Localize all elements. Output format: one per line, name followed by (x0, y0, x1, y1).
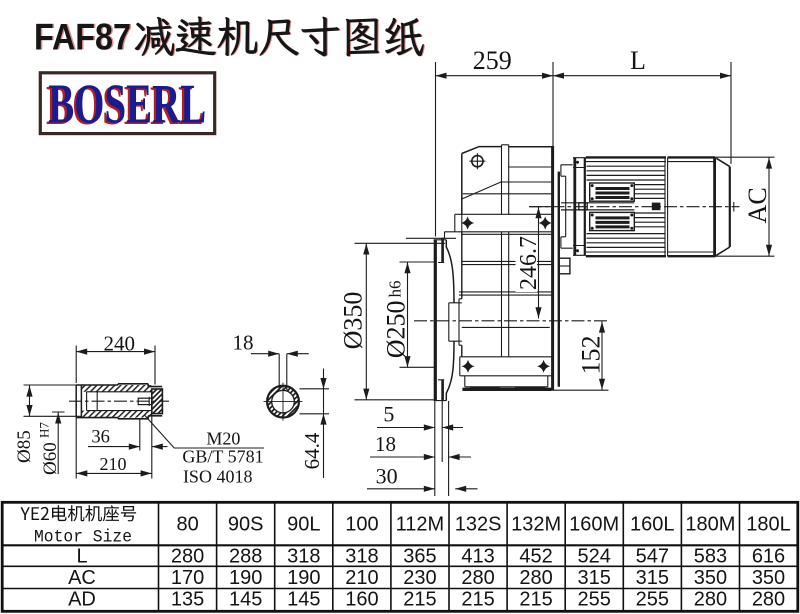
svg-text:215: 215 (403, 589, 436, 611)
svg-text:350: 350 (752, 567, 785, 589)
svg-text:AD: AD (68, 589, 96, 611)
svg-text:255: 255 (578, 589, 611, 611)
svg-text:583: 583 (694, 545, 727, 567)
svg-text:318: 318 (287, 545, 320, 567)
svg-text:246.7: 246.7 (516, 236, 542, 290)
svg-text:160M: 160M (569, 514, 619, 536)
svg-text:BOSERL: BOSERL (48, 74, 206, 136)
svg-text:152: 152 (577, 336, 606, 375)
svg-text:L: L (76, 545, 87, 567)
svg-text:90L: 90L (287, 514, 320, 536)
svg-text:36: 36 (91, 427, 110, 447)
svg-text:132S: 132S (455, 514, 502, 536)
svg-text:L: L (630, 46, 646, 75)
svg-text:547: 547 (636, 545, 669, 567)
svg-text:145: 145 (287, 589, 320, 611)
svg-text:180M: 180M (685, 514, 735, 536)
svg-text:230: 230 (403, 567, 436, 589)
svg-text:190: 190 (287, 567, 320, 589)
svg-text:Ø250: Ø250 (382, 301, 411, 359)
svg-text:210: 210 (345, 567, 378, 589)
svg-text:255: 255 (636, 589, 669, 611)
svg-text:132M: 132M (511, 514, 561, 536)
svg-text:AC: AC (68, 567, 96, 589)
svg-text:145: 145 (229, 589, 262, 611)
svg-text:259: 259 (473, 46, 512, 75)
svg-text:Ø85: Ø85 (14, 430, 35, 463)
svg-text:452: 452 (519, 545, 552, 567)
svg-text:524: 524 (578, 545, 611, 567)
svg-text:215: 215 (519, 589, 552, 611)
svg-text:318: 318 (345, 545, 378, 567)
svg-text:Ø350: Ø350 (339, 292, 368, 350)
svg-text:100: 100 (345, 514, 378, 536)
svg-text:616: 616 (752, 545, 785, 567)
svg-text:64.4: 64.4 (300, 432, 324, 469)
svg-text:GB/T 5781: GB/T 5781 (182, 447, 263, 467)
svg-text:190: 190 (229, 567, 262, 589)
svg-text:280: 280 (752, 589, 785, 611)
svg-text:5: 5 (383, 402, 394, 427)
svg-text:413: 413 (461, 545, 494, 567)
svg-text:FAF87: FAF87 (34, 17, 131, 58)
svg-text:18: 18 (375, 432, 396, 456)
svg-text:315: 315 (636, 567, 669, 589)
svg-text:18: 18 (233, 331, 254, 355)
svg-text:Ø60: Ø60 (40, 442, 61, 475)
svg-text:365: 365 (403, 545, 436, 567)
svg-text:AC: AC (743, 187, 772, 223)
svg-text:288: 288 (229, 545, 262, 567)
svg-text:ISO 4018: ISO 4018 (183, 467, 253, 487)
svg-text:170: 170 (171, 567, 204, 589)
svg-text:H7: H7 (37, 422, 52, 438)
svg-text:280: 280 (519, 567, 552, 589)
svg-text:160L: 160L (630, 514, 675, 536)
svg-text:112M: 112M (396, 514, 445, 536)
svg-text:80: 80 (176, 514, 198, 536)
svg-text:350: 350 (694, 567, 727, 589)
svg-text:280: 280 (171, 545, 204, 567)
svg-text:30: 30 (376, 464, 398, 489)
svg-text:315: 315 (578, 567, 611, 589)
svg-text:M20: M20 (206, 428, 240, 448)
svg-text:280: 280 (461, 567, 494, 589)
svg-text:135: 135 (171, 589, 204, 611)
svg-text:240: 240 (104, 331, 136, 355)
svg-text:215: 215 (461, 589, 494, 611)
svg-text:160: 160 (345, 589, 378, 611)
svg-text:180L: 180L (746, 514, 791, 536)
svg-text:h6: h6 (386, 281, 405, 298)
svg-text:210: 210 (100, 454, 127, 474)
svg-text:90S: 90S (228, 514, 264, 536)
svg-text:280: 280 (694, 589, 727, 611)
